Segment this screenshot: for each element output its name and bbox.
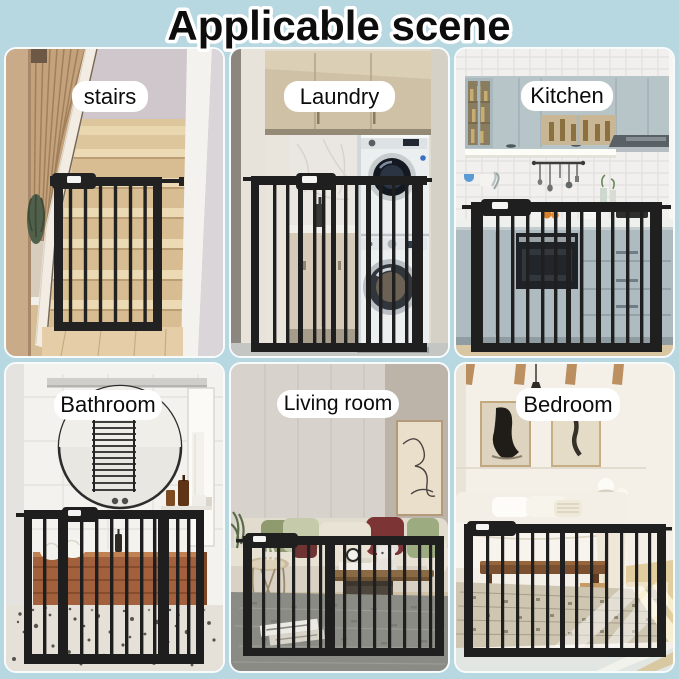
svg-text:Applicable scene: Applicable scene xyxy=(167,2,510,49)
